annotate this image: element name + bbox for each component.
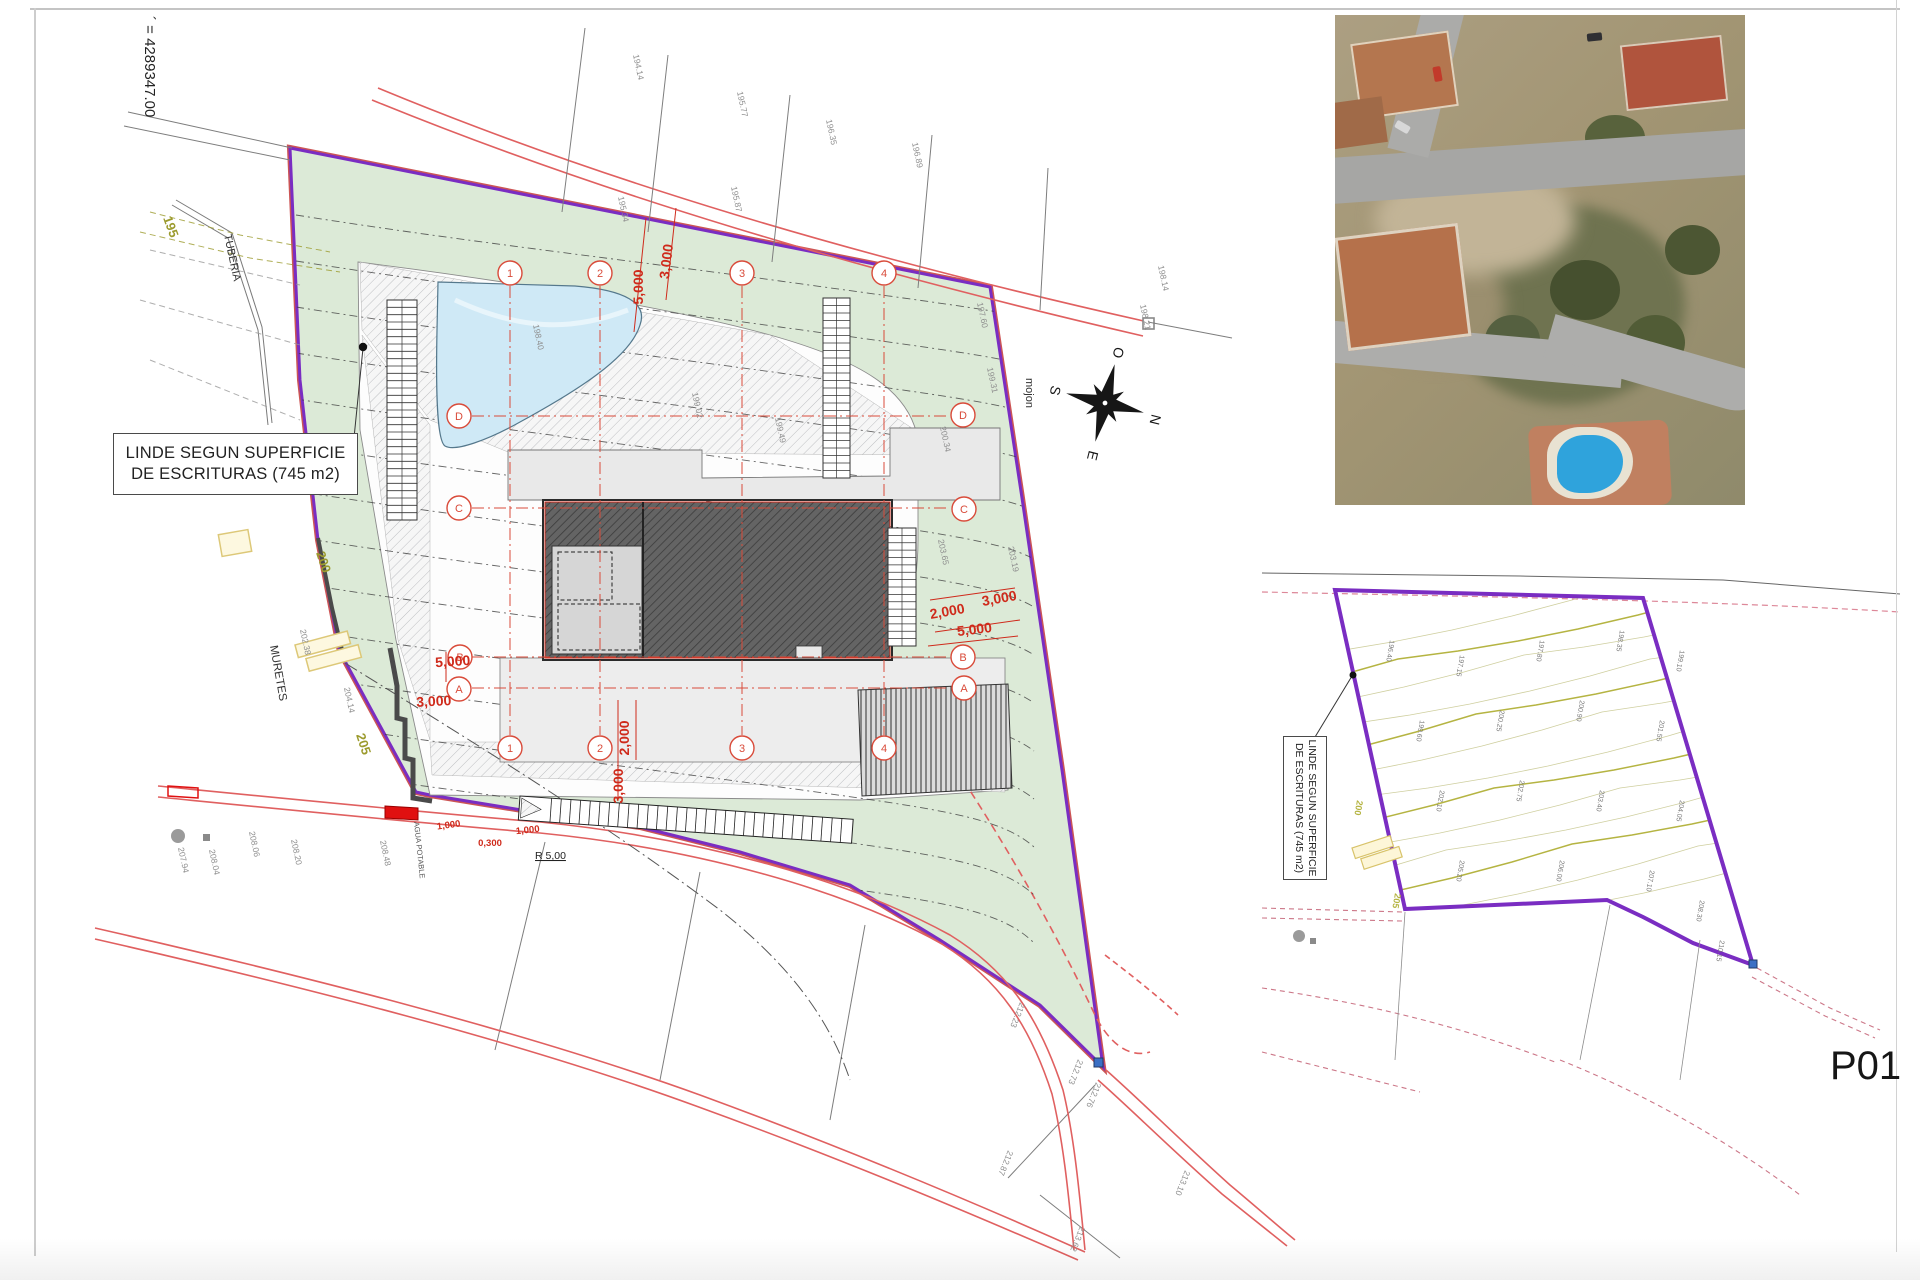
- grid-bubble-label: 1: [507, 743, 513, 755]
- inset-point-label: 206.00: [1554, 860, 1565, 882]
- grid-bubble-label: A: [455, 684, 463, 696]
- sheet-shadow: [0, 1238, 1920, 1280]
- survey-inset: 196.40197.15197.80198.35199.10199.60200.…: [1262, 562, 1900, 1195]
- inset-point-label: 200.90: [1574, 700, 1585, 722]
- inset-point-label: 199.60: [1414, 720, 1425, 742]
- grid-bubble-label: D: [455, 411, 463, 423]
- inset-linde-label-line2: DE ESCRITURAS (745 m2): [1292, 743, 1305, 873]
- drawing-sheet: OSNE mojon TUBERIA MURETES AGUA POTABLE …: [0, 0, 1920, 1280]
- dimension-label: 3,000: [610, 768, 626, 803]
- aerial-tree: [1665, 225, 1720, 275]
- inset-division-lines: [1395, 905, 1700, 1080]
- inset-point-label: 202.75: [1514, 780, 1525, 802]
- aerial-car: [1587, 32, 1603, 42]
- inset-point-label: 204.05: [1674, 800, 1685, 822]
- inset-linde-label-line1: LINDE SEGUN SUPERFICIE: [1305, 739, 1318, 876]
- inset-point-label: 199.10: [1674, 650, 1685, 672]
- survey-point-label: 208.04: [207, 848, 222, 876]
- inset-point-label: 201.55: [1654, 720, 1665, 742]
- inset-contour-line: [1386, 777, 1806, 868]
- dimension-label: 1,000: [515, 824, 540, 837]
- dimension-label: 0,300: [478, 838, 502, 849]
- dimension-label: 1,000: [436, 818, 461, 832]
- inset-point-label: 205.20: [1454, 860, 1465, 882]
- grid-bubble-label: B: [959, 652, 966, 664]
- inset-point-label: 208.30: [1694, 900, 1705, 922]
- survey-point-label: 198.21: [1138, 303, 1153, 331]
- inset-point-label: 197.15: [1454, 655, 1465, 677]
- grid-bubble-label: D: [959, 410, 967, 422]
- mojon-label: mojon: [1023, 378, 1035, 408]
- survey-point-label: 194.14: [631, 53, 646, 81]
- coordinate-label: ´ = 4289347.00: [141, 16, 158, 117]
- road-end-red: [385, 806, 418, 820]
- boundary-marker-blue: [1094, 1058, 1103, 1067]
- contour-elevation-label: 195: [160, 214, 182, 240]
- survey-point-label: 212.73: [1066, 1058, 1085, 1086]
- survey-point-label: 196.35: [824, 118, 839, 146]
- survey-point-label: 207.94: [176, 846, 191, 874]
- grid-bubble-label: 4: [881, 268, 887, 280]
- sheet-frame-top: [30, 8, 1900, 10]
- inset-point-label: 198.35: [1614, 630, 1625, 652]
- inset-marker-blue: [1749, 960, 1757, 968]
- grid-bubble-label: 3: [739, 268, 745, 280]
- north-arrow-icon: OSNE: [1034, 333, 1179, 475]
- survey-point-label: 198.14: [1156, 264, 1171, 292]
- linde-label-box: LINDE SEGUN SUPERFICIE DE ESCRITURAS (74…: [113, 433, 358, 495]
- inset-contour-elevation-label: 205: [1390, 893, 1402, 910]
- inset-contour-line: [1404, 845, 1824, 940]
- grid-bubble-label: 2: [597, 268, 603, 280]
- survey-point-label: 204.14: [342, 686, 357, 714]
- inset-contour-line: [1344, 611, 1764, 700]
- compass-letter: O: [1109, 346, 1127, 361]
- compass-letter: E: [1084, 449, 1102, 462]
- aerial-house: [1335, 96, 1388, 150]
- inset-linde-label-box: LINDE SEGUN SUPERFICIE DE ESCRITURAS (74…: [1283, 736, 1327, 880]
- grid-bubble-label: C: [455, 503, 463, 515]
- inset-point-label: 202.10: [1434, 790, 1445, 812]
- aerial-house-large: [1335, 223, 1471, 351]
- inset-point-label: 207.10: [1644, 870, 1655, 892]
- grid-bubble-label: 4: [881, 743, 887, 755]
- survey-point-label: 212.23: [1008, 1001, 1027, 1029]
- sheet-number: P01: [1830, 1044, 1901, 1089]
- inset-roads: [1262, 908, 1880, 1195]
- compass-letter: S: [1047, 384, 1065, 397]
- radius-label: R 5,00: [535, 850, 566, 862]
- inset-contour-elevation-label: 200: [1352, 800, 1364, 817]
- grid-bubble-label: 1: [507, 268, 513, 280]
- tuberia-pipe: [172, 200, 272, 425]
- dimension-label: 2,000: [616, 720, 632, 755]
- survey-point-label: 208.48: [378, 839, 393, 867]
- survey-point-label: 212.76: [1084, 1081, 1103, 1109]
- inset-point-label: 200.25: [1494, 710, 1505, 732]
- sheet-frame-left: [34, 8, 36, 1256]
- survey-point-label: 213.10: [1173, 1169, 1192, 1197]
- agua-potable-label: AGUA POTABLE: [412, 821, 427, 879]
- grid-bubble-label: A: [960, 683, 968, 695]
- grid-bubble-label: 3: [739, 743, 745, 755]
- survey-point-label: 195.87: [729, 185, 744, 213]
- survey-point-label: 196.89: [910, 141, 925, 169]
- linde-label-line2: DE ESCRITURAS (745 m2): [131, 464, 340, 485]
- dimension-label: 5,000: [435, 652, 471, 670]
- grid-bubble-label: 2: [597, 743, 603, 755]
- survey-point-label: 208.06: [247, 830, 262, 858]
- compass-letter: N: [1146, 413, 1164, 427]
- aerial-tree: [1550, 260, 1620, 320]
- mojon-point: [359, 343, 367, 351]
- survey-point-label: 195.77: [735, 90, 750, 118]
- survey-point-label: 208.20: [289, 838, 304, 866]
- inset-contour-line: [1350, 641, 1770, 724]
- aerial-house: [1620, 35, 1728, 111]
- dimension-label: 3,000: [416, 692, 452, 710]
- inset-contour-line: [1332, 562, 1752, 652]
- grid-bubble-label: C: [960, 504, 968, 516]
- linde-label-line1: LINDE SEGUN SUPERFICIE: [126, 443, 346, 464]
- inset-contour-lines: [1332, 562, 1824, 940]
- dimension-label: 5,000: [630, 269, 646, 304]
- inset-point-label: 203.40: [1594, 790, 1605, 812]
- inset-point-label: 197.80: [1534, 640, 1545, 662]
- inset-contour-line: [1368, 709, 1788, 796]
- contour-elevation-label: 205: [353, 731, 374, 756]
- muretes-label: MURETES: [267, 644, 289, 702]
- aerial-photo: [1335, 15, 1745, 505]
